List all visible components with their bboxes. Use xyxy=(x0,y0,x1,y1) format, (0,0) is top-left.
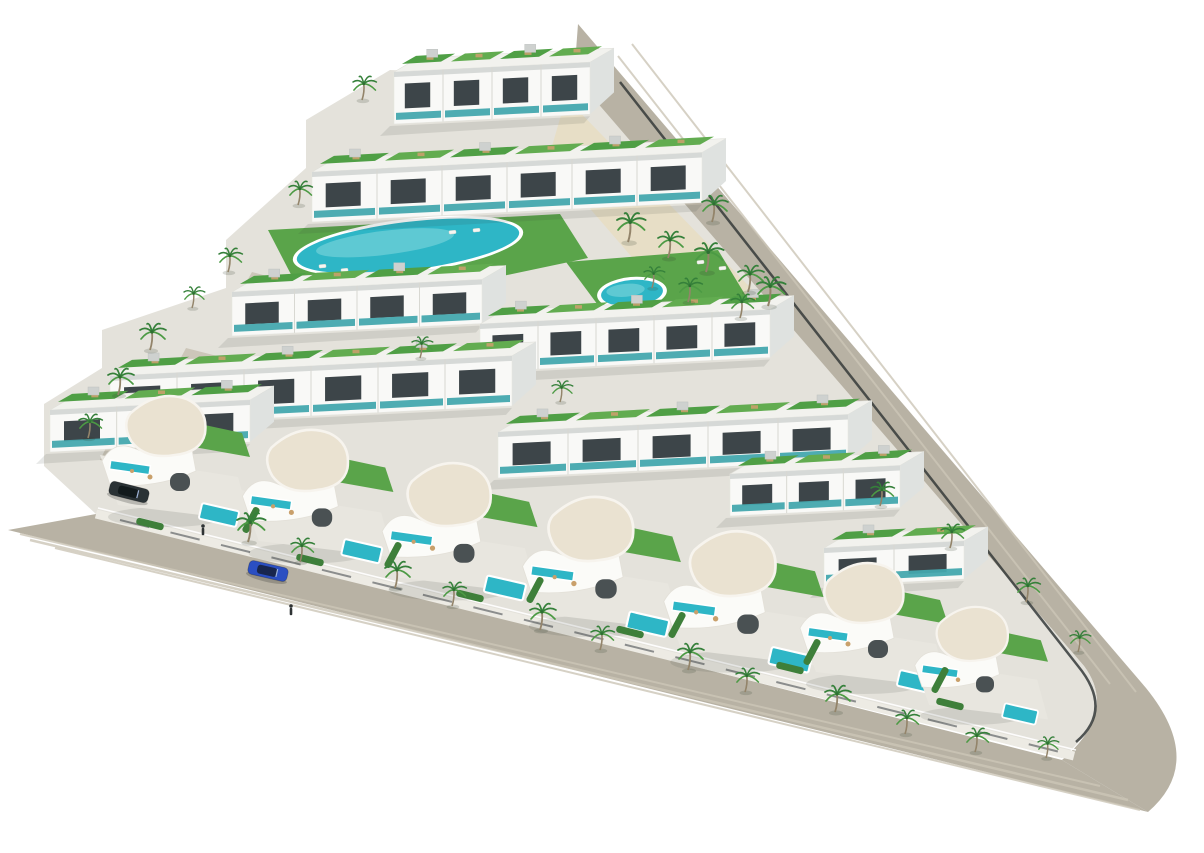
terrace-window xyxy=(454,80,479,106)
villa-doorway xyxy=(868,640,888,658)
patio-chair xyxy=(828,636,832,640)
roof-furniture xyxy=(334,273,341,277)
palm-crown xyxy=(668,238,671,241)
palm-crown xyxy=(1078,636,1081,639)
terrace-window xyxy=(742,484,772,506)
palm-crown xyxy=(1026,584,1029,587)
palm-crown xyxy=(748,272,751,275)
palm-crown xyxy=(420,342,423,345)
roof-furniture xyxy=(751,405,758,409)
patio-chair xyxy=(412,540,416,544)
patio-table xyxy=(571,581,576,586)
palm-crown xyxy=(298,187,301,190)
palm-crown xyxy=(452,588,455,591)
palm-crown xyxy=(1046,742,1049,745)
stair-box xyxy=(525,44,536,52)
palm-crown xyxy=(118,375,121,378)
roof-furniture xyxy=(158,391,165,395)
palm-crown xyxy=(150,330,153,333)
patio-chair xyxy=(553,575,557,579)
terrace-window xyxy=(325,375,361,401)
roof-furniture xyxy=(476,54,483,58)
villa-doorway xyxy=(737,614,759,633)
patio-chair xyxy=(694,610,698,614)
apartment-row-a xyxy=(380,44,614,136)
sun-lounger xyxy=(697,260,704,264)
villa-doorway xyxy=(170,473,190,491)
palm-crown xyxy=(835,692,838,695)
patio-chair xyxy=(271,504,275,508)
stair-box xyxy=(394,263,405,271)
palm-crown xyxy=(652,272,655,275)
patio-table xyxy=(846,642,851,647)
render-canvas xyxy=(0,0,1204,853)
palm-crown xyxy=(300,544,303,547)
villa-doorway xyxy=(454,544,475,563)
palm-crown xyxy=(362,82,365,85)
palm-crown xyxy=(688,284,691,287)
pedestrian xyxy=(201,524,205,535)
villa-doorway xyxy=(595,579,616,598)
terrace-window xyxy=(308,299,342,322)
stair-box xyxy=(610,136,621,144)
patio-table xyxy=(956,678,961,683)
person-body xyxy=(290,608,293,616)
palm-crown xyxy=(395,568,398,571)
terrace-window xyxy=(723,431,761,455)
palm-crown xyxy=(192,292,195,295)
palm-crown xyxy=(688,650,691,653)
terrace-window xyxy=(433,292,467,315)
terrace-window xyxy=(608,328,639,353)
pedestrian xyxy=(289,604,293,615)
terrace-window xyxy=(405,82,430,108)
palm-crown xyxy=(880,488,883,491)
terrace-window xyxy=(653,434,691,458)
roof-furniture xyxy=(678,140,685,144)
sun-lounger xyxy=(473,228,480,232)
patio-table xyxy=(713,616,718,621)
terrace-window xyxy=(521,172,556,198)
stair-box xyxy=(631,295,642,303)
stair-box xyxy=(282,346,293,354)
roof-furniture xyxy=(418,153,425,157)
roof-furniture xyxy=(487,343,494,347)
terrace-window xyxy=(392,372,428,398)
stair-box xyxy=(350,149,361,157)
terrace-window xyxy=(666,325,697,350)
palm-crown xyxy=(712,202,715,205)
person-head xyxy=(289,604,293,608)
stair-box xyxy=(677,402,688,410)
palm-crown xyxy=(600,632,603,635)
stair-box xyxy=(148,353,159,361)
person-body xyxy=(202,528,205,536)
palm-crown xyxy=(706,250,710,254)
villa-doorway xyxy=(976,676,994,692)
palm-crown xyxy=(248,520,252,524)
roof-furniture xyxy=(823,455,830,459)
palm-crown xyxy=(745,674,748,677)
terrace-window xyxy=(583,438,621,462)
stair-box xyxy=(88,387,99,395)
terrace-window xyxy=(651,165,686,191)
roof-furniture xyxy=(611,412,618,416)
palm-crown xyxy=(740,300,743,303)
palm-crown xyxy=(768,284,772,288)
stair-box xyxy=(480,143,491,151)
palm-crown xyxy=(228,254,231,257)
sun-lounger xyxy=(449,230,456,234)
stair-box xyxy=(221,380,232,388)
patio-table xyxy=(148,475,153,480)
stair-box xyxy=(863,525,874,533)
palm-crown xyxy=(88,420,91,423)
palm-crown xyxy=(905,716,908,719)
terrace-window xyxy=(799,481,829,503)
patio-table xyxy=(289,510,294,515)
palm-crown xyxy=(975,734,978,737)
stair-box xyxy=(427,49,438,57)
sun-lounger xyxy=(319,264,326,268)
roof-furniture xyxy=(575,305,582,309)
stair-box xyxy=(878,445,889,453)
stair-box xyxy=(269,269,280,277)
terrace-window xyxy=(370,295,404,318)
palm-crown xyxy=(950,530,953,533)
stair-box xyxy=(817,395,828,403)
person-head xyxy=(201,524,205,528)
patio-chair xyxy=(130,469,134,473)
terrace-window xyxy=(793,427,831,451)
aerial-render xyxy=(0,0,1204,853)
roof-furniture xyxy=(353,350,360,354)
terrace-window xyxy=(456,175,491,201)
roof-furniture xyxy=(459,267,466,271)
terrace-window xyxy=(586,169,621,195)
terrace-window xyxy=(503,77,528,103)
sun-lounger xyxy=(719,266,726,270)
terrace-window xyxy=(513,441,551,465)
palm-crown xyxy=(560,386,563,389)
terrace-window xyxy=(552,75,577,101)
terrace-window xyxy=(550,331,581,356)
terrace-window xyxy=(326,182,361,208)
patio-table xyxy=(430,545,435,550)
villa-doorway xyxy=(312,508,332,526)
terrace-window xyxy=(391,178,426,204)
stair-box xyxy=(537,409,548,417)
palm-crown xyxy=(628,220,632,224)
roof-furniture xyxy=(219,356,226,360)
roof-furniture xyxy=(574,49,581,53)
roof-furniture xyxy=(548,146,555,150)
palm-crown xyxy=(540,610,543,613)
terrace-window xyxy=(245,302,279,325)
terrace-window xyxy=(724,322,755,347)
site-plan-svg xyxy=(0,0,1204,853)
terrace-window xyxy=(459,369,495,395)
stair-box xyxy=(515,301,526,309)
stair-box xyxy=(765,451,776,459)
